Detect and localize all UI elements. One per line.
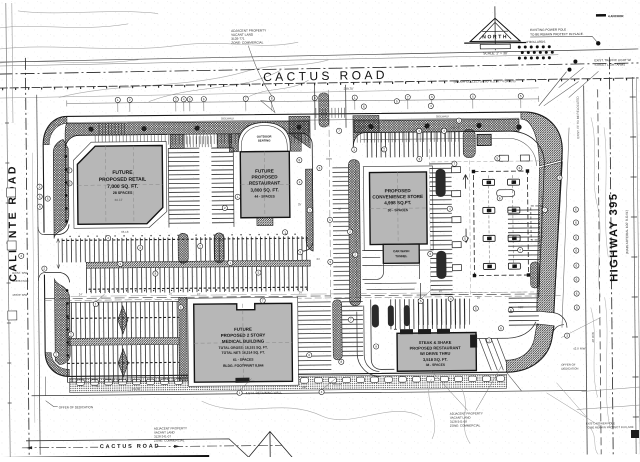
svg-text:30': 30' (338, 207, 342, 211)
svg-text:SCALE: 1" = 30': SCALE: 1" = 30' (483, 51, 508, 55)
svg-text:NORTH: NORTH (482, 34, 508, 40)
svg-text:3,518 SQ. FT.: 3,518 SQ. FT. (423, 357, 448, 362)
svg-text:ZONE: COMMERCIAL: ZONE: COMMERCIAL (231, 41, 263, 45)
svg-text:151.82': 151.82' (132, 387, 142, 391)
svg-text:FUTURE: FUTURE (255, 168, 274, 173)
svg-text:249.70': 249.70' (344, 87, 354, 91)
svg-text:26': 26' (299, 290, 303, 294)
svg-text:(MAJOR COLLECTOR 80' R.O.W. -: (MAJOR COLLECTOR 80' R.O.W. - 4 LANES) (454, 79, 516, 84)
svg-text:STEAK & SHAKE: STEAK & SHAKE (419, 340, 452, 345)
svg-text:TO BE REMAIN PROTECT IN PLACE: TO BE REMAIN PROTECT IN PLACE (530, 32, 583, 37)
svg-text:TOTAL NET: 16,214 SQ. FT.: TOTAL NET: 16,214 SQ. FT. (222, 351, 266, 355)
svg-text:24': 24' (359, 127, 363, 131)
svg-text:24': 24' (79, 292, 83, 296)
svg-text:BLDG. FOOTPRINT 8,844: BLDG. FOOTPRINT 8,844 (223, 364, 264, 368)
svg-text:3,800 SQ. FT.: 3,800 SQ. FT. (250, 187, 278, 192)
svg-text:FUTURE: FUTURE (234, 327, 252, 332)
svg-text:38 - SPACES: 38 - SPACES (426, 363, 445, 367)
svg-text:PROPOSED RESTAURANT: PROPOSED RESTAURANT (410, 345, 462, 350)
svg-text:66.13': 66.13' (121, 230, 129, 234)
svg-text:150': 150' (302, 385, 308, 389)
svg-text:W/ DRIVE THRU: W/ DRIVE THRU (420, 351, 451, 356)
svg-text:RESTAURANT: RESTAURANT (249, 180, 281, 185)
svg-text:EXIST. R/W: EXIST. R/W (12, 271, 27, 275)
svg-text:4 ANCHOR: 4 ANCHOR (608, 14, 624, 18)
svg-text:61 - SPACES: 61 - SPACES (233, 358, 254, 362)
svg-text:26': 26' (439, 289, 443, 293)
svg-text:42.5' R/W: 42.5' R/W (573, 346, 586, 350)
svg-text:PROPOSED: PROPOSED (385, 188, 412, 193)
svg-text:249.70': 249.70' (450, 126, 460, 130)
svg-text:PROPOSED: PROPOSED (251, 174, 278, 179)
svg-text:101.62': 101.62' (333, 382, 343, 386)
svg-text:66.13': 66.13' (115, 198, 124, 202)
svg-text:12': 12' (197, 292, 201, 296)
svg-text:28 SPACES: 28 SPACES (113, 191, 133, 195)
svg-text:7,000 SQ. FT.: 7,000 SQ. FT. (107, 184, 139, 190)
svg-text:(MAIN ARTERIAL 100' R.O.W.): (MAIN ARTERIAL 100' R.O.W.) (625, 210, 629, 254)
svg-text:CAR WASH: CAR WASH (393, 249, 409, 253)
svg-text:45': 45' (96, 384, 100, 388)
svg-text:25': 25' (477, 295, 481, 299)
svg-text:CALIENTE ROAD: CALIENTE ROAD (6, 164, 19, 282)
svg-text:PROP. R/W: PROP. R/W (13, 293, 28, 297)
svg-text:MEDICAL BUILDING: MEDICAL BUILDING (222, 339, 265, 344)
svg-text:25': 25' (298, 202, 302, 206)
svg-text:24': 24' (202, 129, 206, 133)
svg-text:TO BE REMAIN PROTECT IN PLACE: TO BE REMAIN PROTECT IN PLACE (586, 425, 634, 429)
svg-text:R25': R25' (326, 157, 332, 161)
svg-text:4.5' H. RETAINING WALL: 4.5' H. RETAINING WALL (246, 391, 283, 395)
svg-text:CURB FACE: CURB FACE (12, 279, 28, 283)
svg-text:25': 25' (169, 291, 173, 295)
svg-text:PROPOSED RETAIL: PROPOSED RETAIL (99, 177, 146, 183)
svg-text:CACTUS ROAD: CACTUS ROAD (100, 444, 161, 451)
svg-text:STREET LIGHT ARMS: STREET LIGHT ARMS (594, 63, 625, 67)
svg-text:PROPOSED 2 STORY: PROPOSED 2 STORY (221, 333, 266, 338)
svg-text:CONVENIENCE STORE: CONVENIENCE STORE (372, 194, 423, 199)
svg-text:HIGHWAY 395: HIGHWAY 395 (608, 192, 621, 281)
svg-text:TUNNEL: TUNNEL (395, 254, 407, 258)
svg-text:TOTAL GROSS: 18,191 SQ. FT.: TOTAL GROSS: 18,191 SQ. FT. (219, 346, 268, 350)
svg-text:CACTUS ROAD: CACTUS ROAD (263, 68, 388, 84)
svg-text:EXIST. FF TO BE RELOCATED: EXIST. FF TO BE RELOCATED (576, 95, 580, 138)
svg-text:DEDICATION: DEDICATION (561, 367, 578, 371)
svg-text:SEATING: SEATING (258, 138, 271, 142)
svg-text:26': 26' (220, 238, 224, 242)
svg-text:44 - SPACES: 44 - SPACES (254, 194, 275, 198)
svg-text:R30': R30' (54, 144, 60, 148)
svg-text:3' BOLLARDS: 3' BOLLARDS (526, 40, 545, 44)
svg-text:SIDEWALK: SIDEWALK (221, 116, 235, 120)
svg-text:ZONE: COMMERCIAL: ZONE: COMMERCIAL (450, 423, 481, 427)
svg-text:4,998 SQ.FT.: 4,998 SQ.FT. (384, 200, 411, 205)
svg-text:OFFER OF DEDICATION: OFFER OF DEDICATION (59, 405, 93, 409)
svg-text:FUTURE: FUTURE (112, 170, 133, 176)
svg-text:30 - SPACES: 30 - SPACES (388, 208, 409, 212)
svg-text:SIDEWALK: SIDEWALK (436, 114, 450, 118)
svg-text:24': 24' (316, 257, 320, 261)
